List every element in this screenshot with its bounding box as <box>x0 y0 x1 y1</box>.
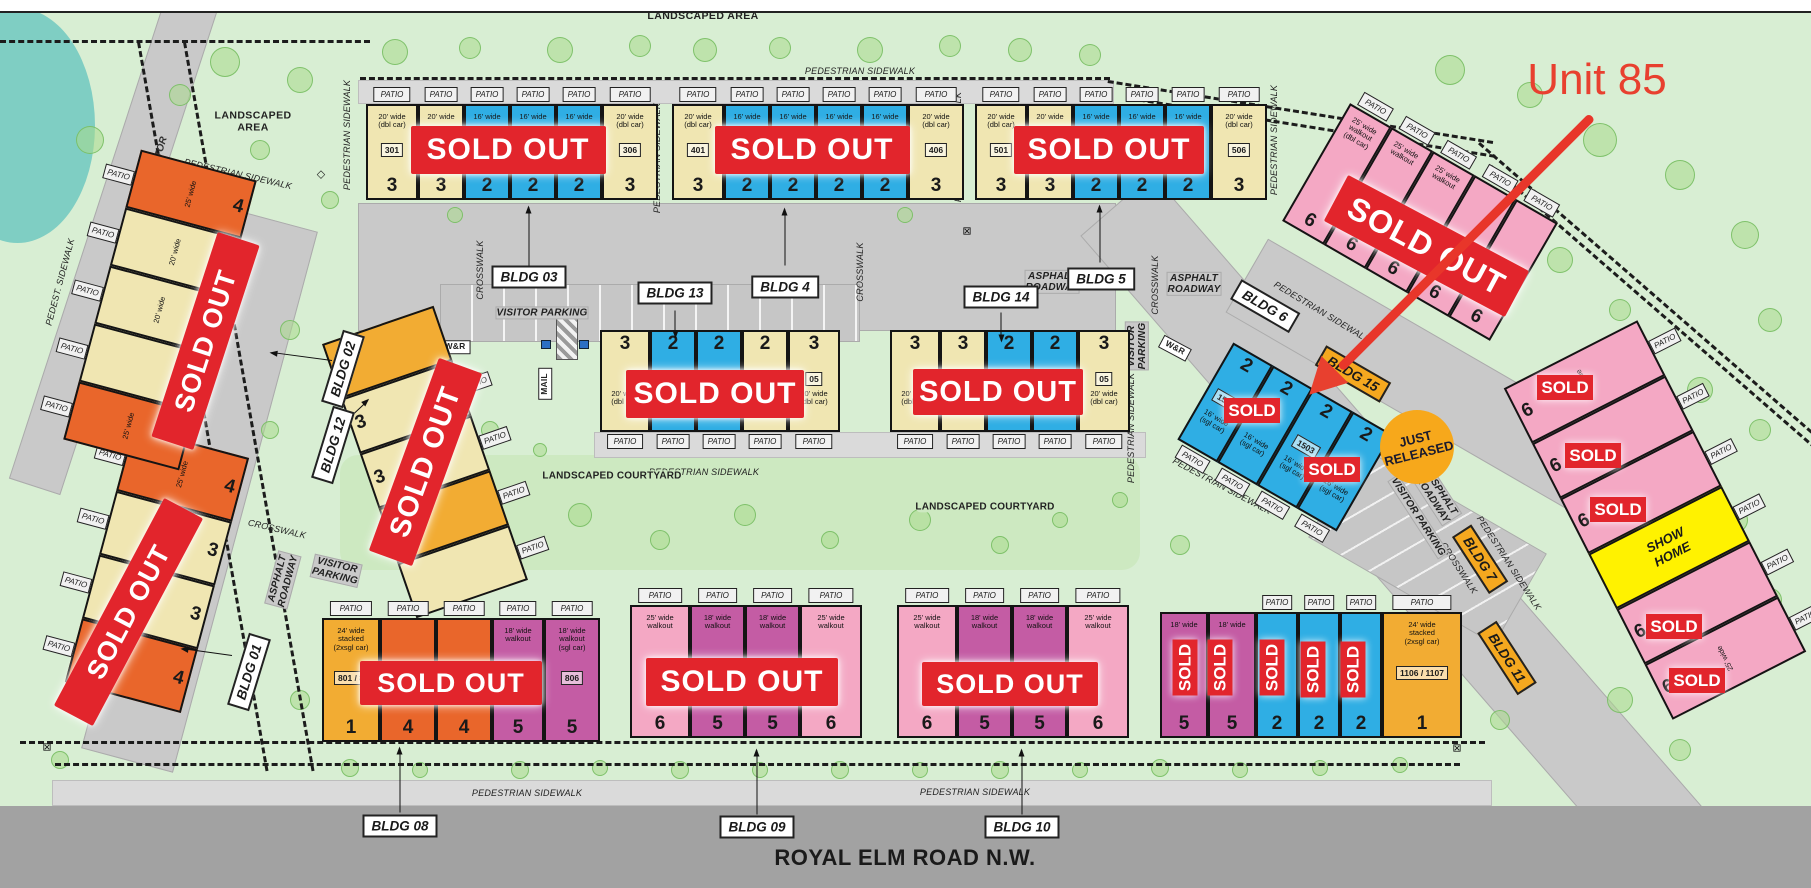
patio-box: PATIO <box>947 434 980 449</box>
unit-spec: 16' wide <box>1076 113 1116 121</box>
tree-icon <box>991 536 1009 554</box>
unit-85-annotation: Unit 85 <box>1527 55 1666 105</box>
boundary-dashed-line <box>20 741 1485 744</box>
tree-icon <box>1008 38 1032 62</box>
crosswalk-hatch <box>556 316 578 360</box>
tree-icon <box>1079 44 1101 66</box>
tree-icon <box>693 38 717 62</box>
unit-number-box: 1503 <box>1291 434 1321 460</box>
leader-arrowhead-icon <box>673 331 679 339</box>
tree-icon <box>857 37 883 63</box>
boundary-dashed-line <box>55 763 1460 766</box>
unit-count: 3 <box>1029 175 1071 197</box>
bldg-tag: BLDG 01 <box>227 633 271 711</box>
leader-arrowhead-icon <box>999 335 1005 343</box>
tree-icon <box>1583 123 1617 157</box>
patio-box: PATIO <box>897 434 933 449</box>
patio-box: PATIO <box>444 601 485 616</box>
unit-number-box: 501 <box>990 143 1012 157</box>
unit-count: 2 <box>1034 333 1076 355</box>
unit-count: 2 <box>1342 713 1380 735</box>
sold-tag: SOLD <box>1301 642 1326 698</box>
leader-arrow <box>529 208 530 266</box>
unit-spec: 18' wide walkout <box>693 614 742 631</box>
unit-spec: 16' wide <box>559 113 599 121</box>
unit-spec: 18' wide walkout <box>495 627 541 644</box>
unit-count: 4 <box>438 717 490 739</box>
bldg-4-unit: 20' wide (dbl car)4063PATIO <box>908 104 964 200</box>
map-label: PEDESTRIAN SIDEWALK <box>472 788 582 798</box>
tree-icon <box>1052 512 1068 528</box>
bldg-11-unit: 24' wide stacked (2xsgl car)1106 / 11071… <box>1382 612 1462 738</box>
unit-count: 2 <box>558 175 600 197</box>
unit-spec: 25' wide <box>118 398 140 454</box>
leader-arrowhead-icon <box>526 206 532 214</box>
tree-icon <box>939 35 961 57</box>
sold-tag: SOLD <box>1669 668 1725 693</box>
patio-box: PATIO <box>823 87 856 102</box>
unit-count: 3 <box>602 333 648 355</box>
bldg-03-unit: 20' wide (dbl car)3063PATIO <box>602 104 658 200</box>
sold-tag: SOLD <box>1341 642 1366 698</box>
patio-box: PATIO <box>1440 140 1477 170</box>
tree-icon <box>568 503 592 527</box>
tree-icon <box>533 443 547 457</box>
tree-icon <box>51 751 69 769</box>
sold-tag: SOLD <box>1537 375 1593 400</box>
tree-icon <box>76 126 104 154</box>
tree-icon <box>447 207 463 223</box>
patio-box: PATIO <box>77 508 110 530</box>
map-label: LANDSCAPED COURTYARD <box>542 470 681 481</box>
unit-count: 4 <box>170 666 186 690</box>
unit-spec: 16' wide <box>1168 113 1208 121</box>
patio-box: PATIO <box>795 434 832 449</box>
parking-stall-marker <box>579 340 589 349</box>
unit-spec: 20' wide (dbl car) <box>1081 390 1127 407</box>
patio-box: PATIO <box>1357 92 1394 122</box>
patio-box: PATIO <box>1676 383 1710 410</box>
leader-arrowhead-icon <box>180 646 189 653</box>
unit-count: 3 <box>892 333 938 355</box>
leader-arrow <box>1100 207 1101 263</box>
map-label: ASPHALT ROADWAY <box>264 550 302 609</box>
bldg-14-unit: 20' wide (dbl car)053PATIO <box>1078 330 1130 432</box>
unit-spec: 24' wide stacked (2xsgl car) <box>1385 621 1459 646</box>
map-label: LANDSCAPED COURTYARD <box>915 501 1054 512</box>
tree-icon <box>897 207 913 223</box>
unit-count: 5 <box>1162 713 1206 735</box>
bldg-tag: BLDG 03 <box>491 266 566 289</box>
unit-spec: 18' wide <box>1211 621 1253 629</box>
just-released-label: JUST RELEASED <box>1379 424 1455 470</box>
patio-box: PATIO <box>1789 604 1811 631</box>
patio-box: PATIO <box>753 588 793 603</box>
unit-spec: 16' wide <box>865 113 905 121</box>
parking-stall-marker <box>541 340 551 349</box>
map-label: PEDESTRIAN SIDEWALK <box>920 787 1030 797</box>
sold-out-banner: SOLD OUT <box>360 661 542 705</box>
patio-box: PATIO <box>517 87 550 102</box>
tree-icon <box>629 35 651 57</box>
map-label: VISITOR PARKING <box>496 306 589 319</box>
map-label: ASPHALT ROADWAY <box>1167 272 1222 296</box>
patio-box: PATIO <box>916 87 957 102</box>
leader-arrowhead-icon <box>270 350 279 357</box>
unit-count: 3 <box>205 539 221 563</box>
unit-spec: 20' wide (dbl car) <box>1214 113 1264 130</box>
patio-box: PATIO <box>1346 595 1376 610</box>
sold-tag: SOLD <box>1224 398 1280 423</box>
unit-count: 2 <box>1258 713 1296 735</box>
patio-box: PATIO <box>43 635 76 657</box>
unit-count: 3 <box>1080 333 1128 355</box>
leader-arrowhead-icon <box>782 208 788 216</box>
map-label: MAIL <box>538 368 552 400</box>
unit-spec: 25' wide walkout <box>1381 136 1426 171</box>
patio-box: PATIO <box>1732 493 1766 520</box>
sold-tag: SOLD <box>1565 443 1621 468</box>
unit-count: 2 <box>512 175 554 197</box>
patio-box: PATIO <box>388 601 429 616</box>
patio-box: PATIO <box>1399 116 1436 146</box>
just-released-badge: JUST RELEASED <box>1380 410 1454 484</box>
unit-spec: 18' wide <box>1163 621 1205 629</box>
bldg-5-unit: 20' wide (dbl car)5063PATIO <box>1211 104 1267 200</box>
unit-count: 3 <box>1213 175 1265 197</box>
patio-box: PATIO <box>1034 87 1067 102</box>
sold-tag: SOLD <box>1590 497 1646 522</box>
tree-icon <box>1607 687 1633 713</box>
tree-icon <box>261 421 279 439</box>
sold-tag: SOLD <box>1260 640 1285 696</box>
patio-box: PATIO <box>731 87 764 102</box>
patio-box: PATIO <box>552 601 593 616</box>
unit-spec: 18' wide walkout <box>748 614 797 631</box>
bldg-08-unit: 18' wide walkout (sgl car)8065PATIO <box>544 618 600 742</box>
unit-number-box: 05 <box>805 372 822 386</box>
unit-spec: 24' wide stacked (2xsgl car) <box>325 627 377 652</box>
sold-tag: SOLD <box>1304 457 1360 482</box>
unit-count: 3 <box>790 333 838 355</box>
tree-icon <box>1758 308 1782 332</box>
unit-count: 2 <box>988 333 1030 355</box>
patio-box: PATIO <box>1648 328 1682 355</box>
patio-box: PATIO <box>1126 87 1159 102</box>
sold-out-banner: SOLD OUT <box>913 369 1083 415</box>
map-label: PEDESTRIAN SIDEWALK <box>805 66 915 76</box>
unit-count: 4 <box>230 195 246 219</box>
unit-spec: 25' wide walkout <box>900 614 954 631</box>
unit-spec: 16' wide <box>727 113 767 121</box>
leader-arrowhead-icon <box>754 749 760 757</box>
tree-icon <box>1435 55 1465 85</box>
patio-box: PATIO <box>1304 595 1334 610</box>
unit-count: 2 <box>726 175 768 197</box>
patio-box: PATIO <box>1219 87 1260 102</box>
patio-box: PATIO <box>703 434 736 449</box>
unit-number-box: 506 <box>1228 143 1250 157</box>
unit-spec: 20' wide (dbl car) <box>369 113 415 130</box>
patio-box: PATIO <box>471 87 504 102</box>
patio-box: PATIO <box>563 87 596 102</box>
map-label: PEDESTRIAN SIDEWALK <box>342 80 352 190</box>
unit-spec: 25' wide walkout (dbl car) <box>1336 112 1385 154</box>
sold-out-banner: SOLD OUT <box>922 662 1098 706</box>
unit-spec: 25' wide <box>180 166 202 222</box>
unit-spec: 20' wide <box>421 113 461 121</box>
map-symbol-icon: ◇ <box>317 168 325 181</box>
tree-icon <box>1112 492 1128 508</box>
tree-icon <box>250 140 270 160</box>
patio-box: PATIO <box>808 588 853 603</box>
unit-count: 2 <box>1121 175 1163 197</box>
tree-icon <box>210 47 240 77</box>
tree-icon <box>1665 160 1695 190</box>
leader-arrowhead-icon <box>1019 749 1025 757</box>
bldg-tag: BLDG 4 <box>751 276 819 299</box>
patio-box: PATIO <box>373 87 410 102</box>
bldg-tag: BLDG 10 <box>984 816 1059 839</box>
unit-spec: 16' wide <box>773 113 813 121</box>
unit-count: 6 <box>632 713 688 735</box>
pond-area <box>0 8 95 243</box>
unit-count: 6 <box>1518 399 1537 423</box>
unit-count: 5 <box>692 713 743 735</box>
patio-box: PATIO <box>749 434 782 449</box>
tree-icon <box>1151 759 1169 777</box>
tree-icon <box>1490 710 1510 730</box>
unit-count: 3 <box>977 175 1025 197</box>
patio-box: PATIO <box>1704 438 1738 465</box>
bldg-tag: BLDG 09 <box>719 816 794 839</box>
map-symbol-icon: ⊠ <box>962 225 971 238</box>
patio-box: PATIO <box>679 87 716 102</box>
sold-out-banner: SOLD OUT <box>626 370 804 418</box>
bldg-tag: BLDG 5 <box>1067 268 1135 291</box>
unit-count: 4 <box>382 717 434 739</box>
unit-count: 2 <box>466 175 508 197</box>
patio-box: PATIO <box>610 87 651 102</box>
tree-icon <box>1749 419 1771 441</box>
patio-box: PATIO <box>1039 434 1072 449</box>
patio-box: PATIO <box>1075 588 1120 603</box>
map-label: LANDSCAPED AREA <box>647 11 758 23</box>
unit-number-box: 406 <box>925 143 947 157</box>
unit-count: 1 <box>1384 713 1460 735</box>
map-label: PEDESTRIAN SIDEWALK <box>1269 85 1279 195</box>
patio-box: PATIO <box>869 87 902 102</box>
map-label: CROSSWALK <box>855 242 865 301</box>
unit-spec: 16' wide <box>513 113 553 121</box>
unit-count: 6 <box>1069 713 1127 735</box>
unit-count: 6 <box>899 713 955 735</box>
unit-count: 2 <box>744 333 786 355</box>
leader-arrowhead-icon <box>1097 205 1103 213</box>
bldg-tag: BLDG 13 <box>637 282 712 305</box>
patio-box: PATIO <box>965 588 1005 603</box>
unit-count: 2 <box>772 175 814 197</box>
patio-box: PATIO <box>1080 87 1113 102</box>
unit-spec: 20' wide (dbl car) <box>911 113 961 130</box>
unit-count: 3 <box>420 175 462 197</box>
tree-icon <box>1669 739 1691 761</box>
patio-box: PATIO <box>777 87 810 102</box>
sidewalk-bottom-strip <box>52 780 1492 806</box>
unit-count: 3 <box>188 602 204 626</box>
unit-number-box: 301 <box>381 143 403 157</box>
patio-box: PATIO <box>607 434 643 449</box>
patio-box: PATIO <box>1761 549 1795 576</box>
tree-icon <box>734 504 756 526</box>
unit-count: 3 <box>368 175 416 197</box>
unit-count: 5 <box>747 713 798 735</box>
leader-arrow <box>675 311 676 337</box>
unit-spec: 16' wide (sgl car) <box>1233 427 1276 461</box>
patio-box: PATIO <box>657 434 690 449</box>
tree-icon <box>650 530 670 550</box>
patio-box: PATIO <box>905 588 949 603</box>
leader-arrow <box>1022 751 1023 815</box>
patio-box: PATIO <box>993 434 1026 449</box>
unit-count: 5 <box>959 713 1010 735</box>
tree-icon <box>1731 221 1759 249</box>
sold-out-banner: SOLD OUT <box>715 126 910 174</box>
patio-box: PATIO <box>638 588 682 603</box>
tree-icon <box>287 67 313 93</box>
unit-number-box: 401 <box>687 143 709 157</box>
unit-count: 5 <box>1014 713 1065 735</box>
unit-spec: 16' wide <box>819 113 859 121</box>
tree-icon <box>547 37 573 63</box>
unit-spec: 20' wide <box>149 282 171 338</box>
unit-number-box: 05 <box>1095 372 1112 386</box>
patio-box: PATIO <box>60 571 93 593</box>
patio-box: PATIO <box>698 588 738 603</box>
leader-arrowhead-icon <box>397 747 403 755</box>
unit-count: 2 <box>1167 175 1209 197</box>
unit-count: 3 <box>910 175 962 197</box>
leader-arrow <box>400 749 401 813</box>
patio-box: PATIO <box>1020 588 1060 603</box>
map-label: CROSSWALK <box>1150 255 1160 314</box>
unit-count: 2 <box>1300 713 1338 735</box>
tree-icon <box>169 84 191 106</box>
tree-icon <box>321 191 339 209</box>
patio-box: PATIO <box>499 601 536 616</box>
bldg-tag: BLDG 08 <box>362 815 437 838</box>
unit-count: 3 <box>604 175 656 197</box>
unit-spec: 20' wide (dbl car) <box>605 113 655 130</box>
leader-arrow <box>757 751 758 815</box>
sold-out-banner: SOLD OUT <box>646 658 838 706</box>
patio-box: PATIO <box>1085 434 1122 449</box>
patio-box: PATIO <box>1523 188 1560 218</box>
tree-icon <box>1170 535 1190 555</box>
unit-count: 5 <box>1210 713 1254 735</box>
unit-count: 6 <box>802 713 860 735</box>
patio-box: PATIO <box>1172 87 1205 102</box>
unit-spec: 25' wide walkout <box>633 614 687 631</box>
patio-box: PATIO <box>982 87 1019 102</box>
sold-tag: SOLD <box>1646 614 1702 639</box>
map-label: CROSSWALK <box>247 517 307 540</box>
tree-icon <box>280 320 300 340</box>
unit-count: 4 <box>222 475 238 499</box>
tree-icon <box>1547 247 1573 273</box>
unit-count: 5 <box>546 717 598 739</box>
unit-count: 2 <box>864 175 906 197</box>
unit-number-box: 806 <box>561 671 583 685</box>
map-symbol-icon: ⊠ <box>42 741 51 754</box>
patio-box: PATIO <box>1262 595 1292 610</box>
sold-out-banner: SOLD OUT <box>411 126 606 174</box>
unit-count: 2 <box>818 175 860 197</box>
sold-tag: SOLD <box>1208 640 1233 696</box>
unit-count: 3 <box>352 411 369 435</box>
leader-arrow <box>785 210 786 266</box>
tree-icon <box>769 37 791 59</box>
map-symbol-icon: ⊠ <box>1452 742 1461 755</box>
unit-spec: 25' wide walkout <box>1423 160 1468 195</box>
north-boundary-band <box>0 0 1811 13</box>
unit-count: 2 <box>698 333 740 355</box>
unit-number-box: 1106 / 1107 <box>1396 666 1448 680</box>
unit-count: 5 <box>494 717 542 739</box>
tree-icon <box>821 531 839 549</box>
tree-icon <box>341 759 359 777</box>
boundary-dashed-line <box>360 77 1110 80</box>
unit-spec: 16' wide <box>467 113 507 121</box>
royal-elm-road-label: ROYAL ELM ROAD N.W. <box>774 845 1035 871</box>
unit-count: 3 <box>371 465 388 489</box>
unit-spec: 25' wide walkout <box>1070 614 1126 631</box>
unit-count: 1 <box>324 717 378 739</box>
unit-spec: 18' wide walkout <box>1015 614 1064 631</box>
map-label: LANDSCAPED AREA <box>215 110 292 134</box>
site-plan-map: 20' wide (dbl car)3013PATIO20' wide3PATI… <box>0 0 1811 888</box>
tree-icon <box>382 39 408 65</box>
unit-count: 2 <box>1075 175 1117 197</box>
unit-spec: 20' wide <box>1030 113 1070 121</box>
unit-spec: 25' wide walkout <box>803 614 859 631</box>
leader-arrow <box>1001 313 1002 341</box>
unit-spec: 18' wide walkout (sgl car) <box>547 627 597 652</box>
patio-box: PATIO <box>1392 595 1451 610</box>
unit-count: 3 <box>942 333 984 355</box>
unit-number-box: 306 <box>619 143 641 157</box>
unit-count: 6 <box>1546 454 1565 478</box>
unit-spec: 20' wide <box>164 224 186 280</box>
patio-box: PATIO <box>1254 491 1290 520</box>
unit-spec: 18' wide walkout <box>960 614 1009 631</box>
sold-out-banner: SOLD OUT <box>1014 126 1204 174</box>
sold-tag: SOLD <box>1173 640 1198 696</box>
unit-count: 3 <box>674 175 722 197</box>
bldg-tag: BLDG 14 <box>963 286 1038 309</box>
tree-icon <box>459 37 481 59</box>
map-label: CROSSWALK <box>475 240 485 299</box>
patio-box: PATIO <box>425 87 458 102</box>
tree-icon <box>1609 299 1631 321</box>
patio-box: PATIO <box>330 601 372 616</box>
unit-spec: 16' wide <box>1122 113 1162 121</box>
